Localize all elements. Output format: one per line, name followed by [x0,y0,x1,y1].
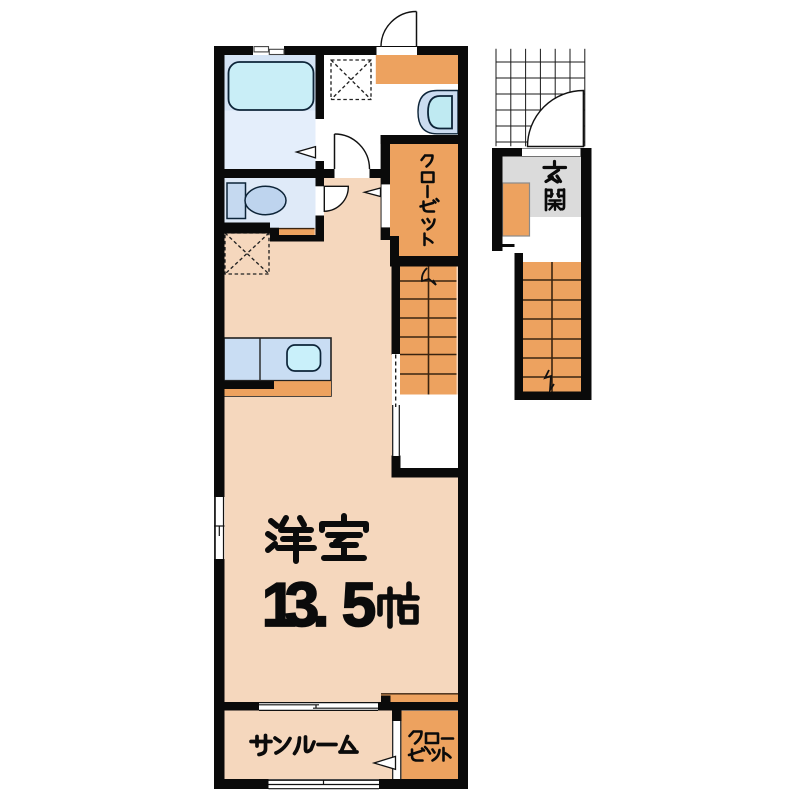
svg-text:.: . [312,571,329,640]
svg-text:5: 5 [342,571,376,640]
